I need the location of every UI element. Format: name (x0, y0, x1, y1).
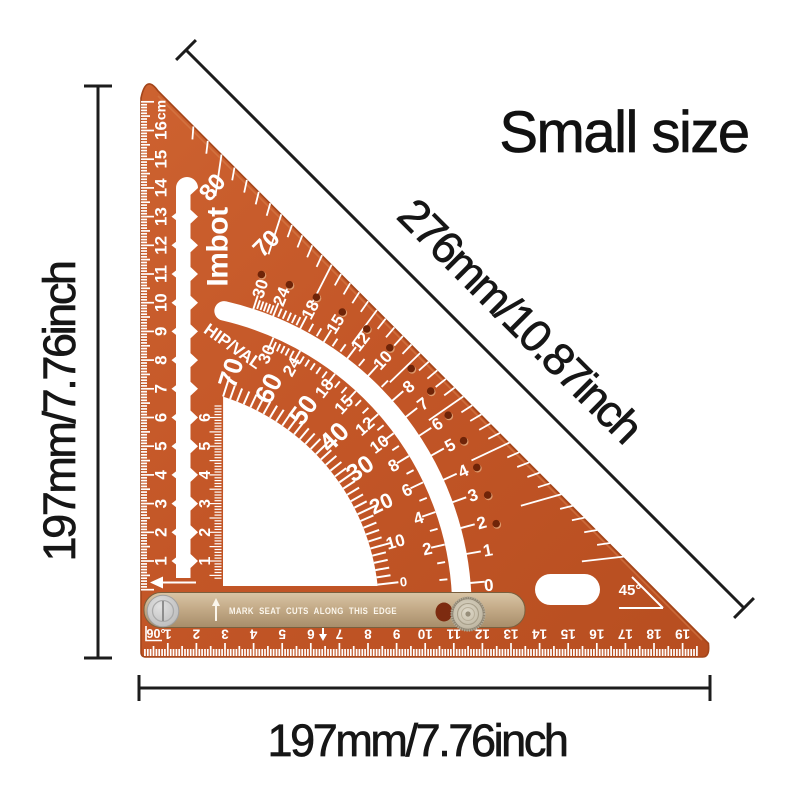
svg-text:16: 16 (589, 626, 605, 641)
svg-text:Imbot: Imbot (202, 207, 235, 287)
svg-text:cm: cm (152, 100, 168, 120)
svg-text:14: 14 (151, 178, 170, 197)
svg-text:17: 17 (618, 626, 633, 641)
svg-text:45°: 45° (619, 582, 642, 599)
svg-text:197mm/7.76inch: 197mm/7.76inch (267, 715, 566, 766)
svg-text:3: 3 (151, 499, 170, 508)
svg-text:14: 14 (532, 626, 548, 641)
svg-text:4: 4 (151, 470, 170, 480)
svg-text:6: 6 (151, 413, 170, 422)
svg-text:10: 10 (151, 293, 170, 312)
svg-text:16: 16 (151, 121, 170, 140)
svg-text:7: 7 (336, 626, 344, 641)
svg-text:5: 5 (151, 441, 170, 450)
svg-text:4: 4 (249, 626, 257, 641)
svg-text:Small size: Small size (499, 100, 748, 165)
svg-text:12: 12 (151, 236, 170, 255)
svg-text:19: 19 (675, 626, 690, 641)
svg-text:15: 15 (560, 626, 576, 641)
svg-text:90°: 90° (147, 627, 166, 641)
svg-text:13: 13 (151, 207, 170, 226)
svg-text:15: 15 (151, 150, 170, 169)
svg-text:2: 2 (151, 528, 170, 537)
svg-text:8: 8 (364, 626, 372, 641)
svg-text:11: 11 (446, 626, 461, 641)
svg-text:MARK SEAT CUTS ALONG THIS EDGE: MARK SEAT CUTS ALONG THIS EDGE (229, 606, 397, 616)
svg-text:9: 9 (393, 626, 401, 641)
svg-text:10: 10 (418, 626, 433, 641)
svg-text:3: 3 (221, 626, 229, 641)
svg-text:7: 7 (151, 384, 170, 393)
svg-text:11: 11 (151, 265, 170, 283)
svg-text:9: 9 (151, 327, 170, 336)
svg-text:18: 18 (646, 626, 662, 641)
svg-text:6: 6 (307, 626, 315, 641)
svg-text:5: 5 (278, 626, 286, 641)
svg-text:2: 2 (193, 626, 201, 641)
svg-text:197mm/7.76inch: 197mm/7.76inch (34, 262, 85, 561)
svg-text:13: 13 (503, 626, 519, 641)
svg-text:1: 1 (151, 556, 170, 565)
svg-text:8: 8 (151, 355, 170, 364)
